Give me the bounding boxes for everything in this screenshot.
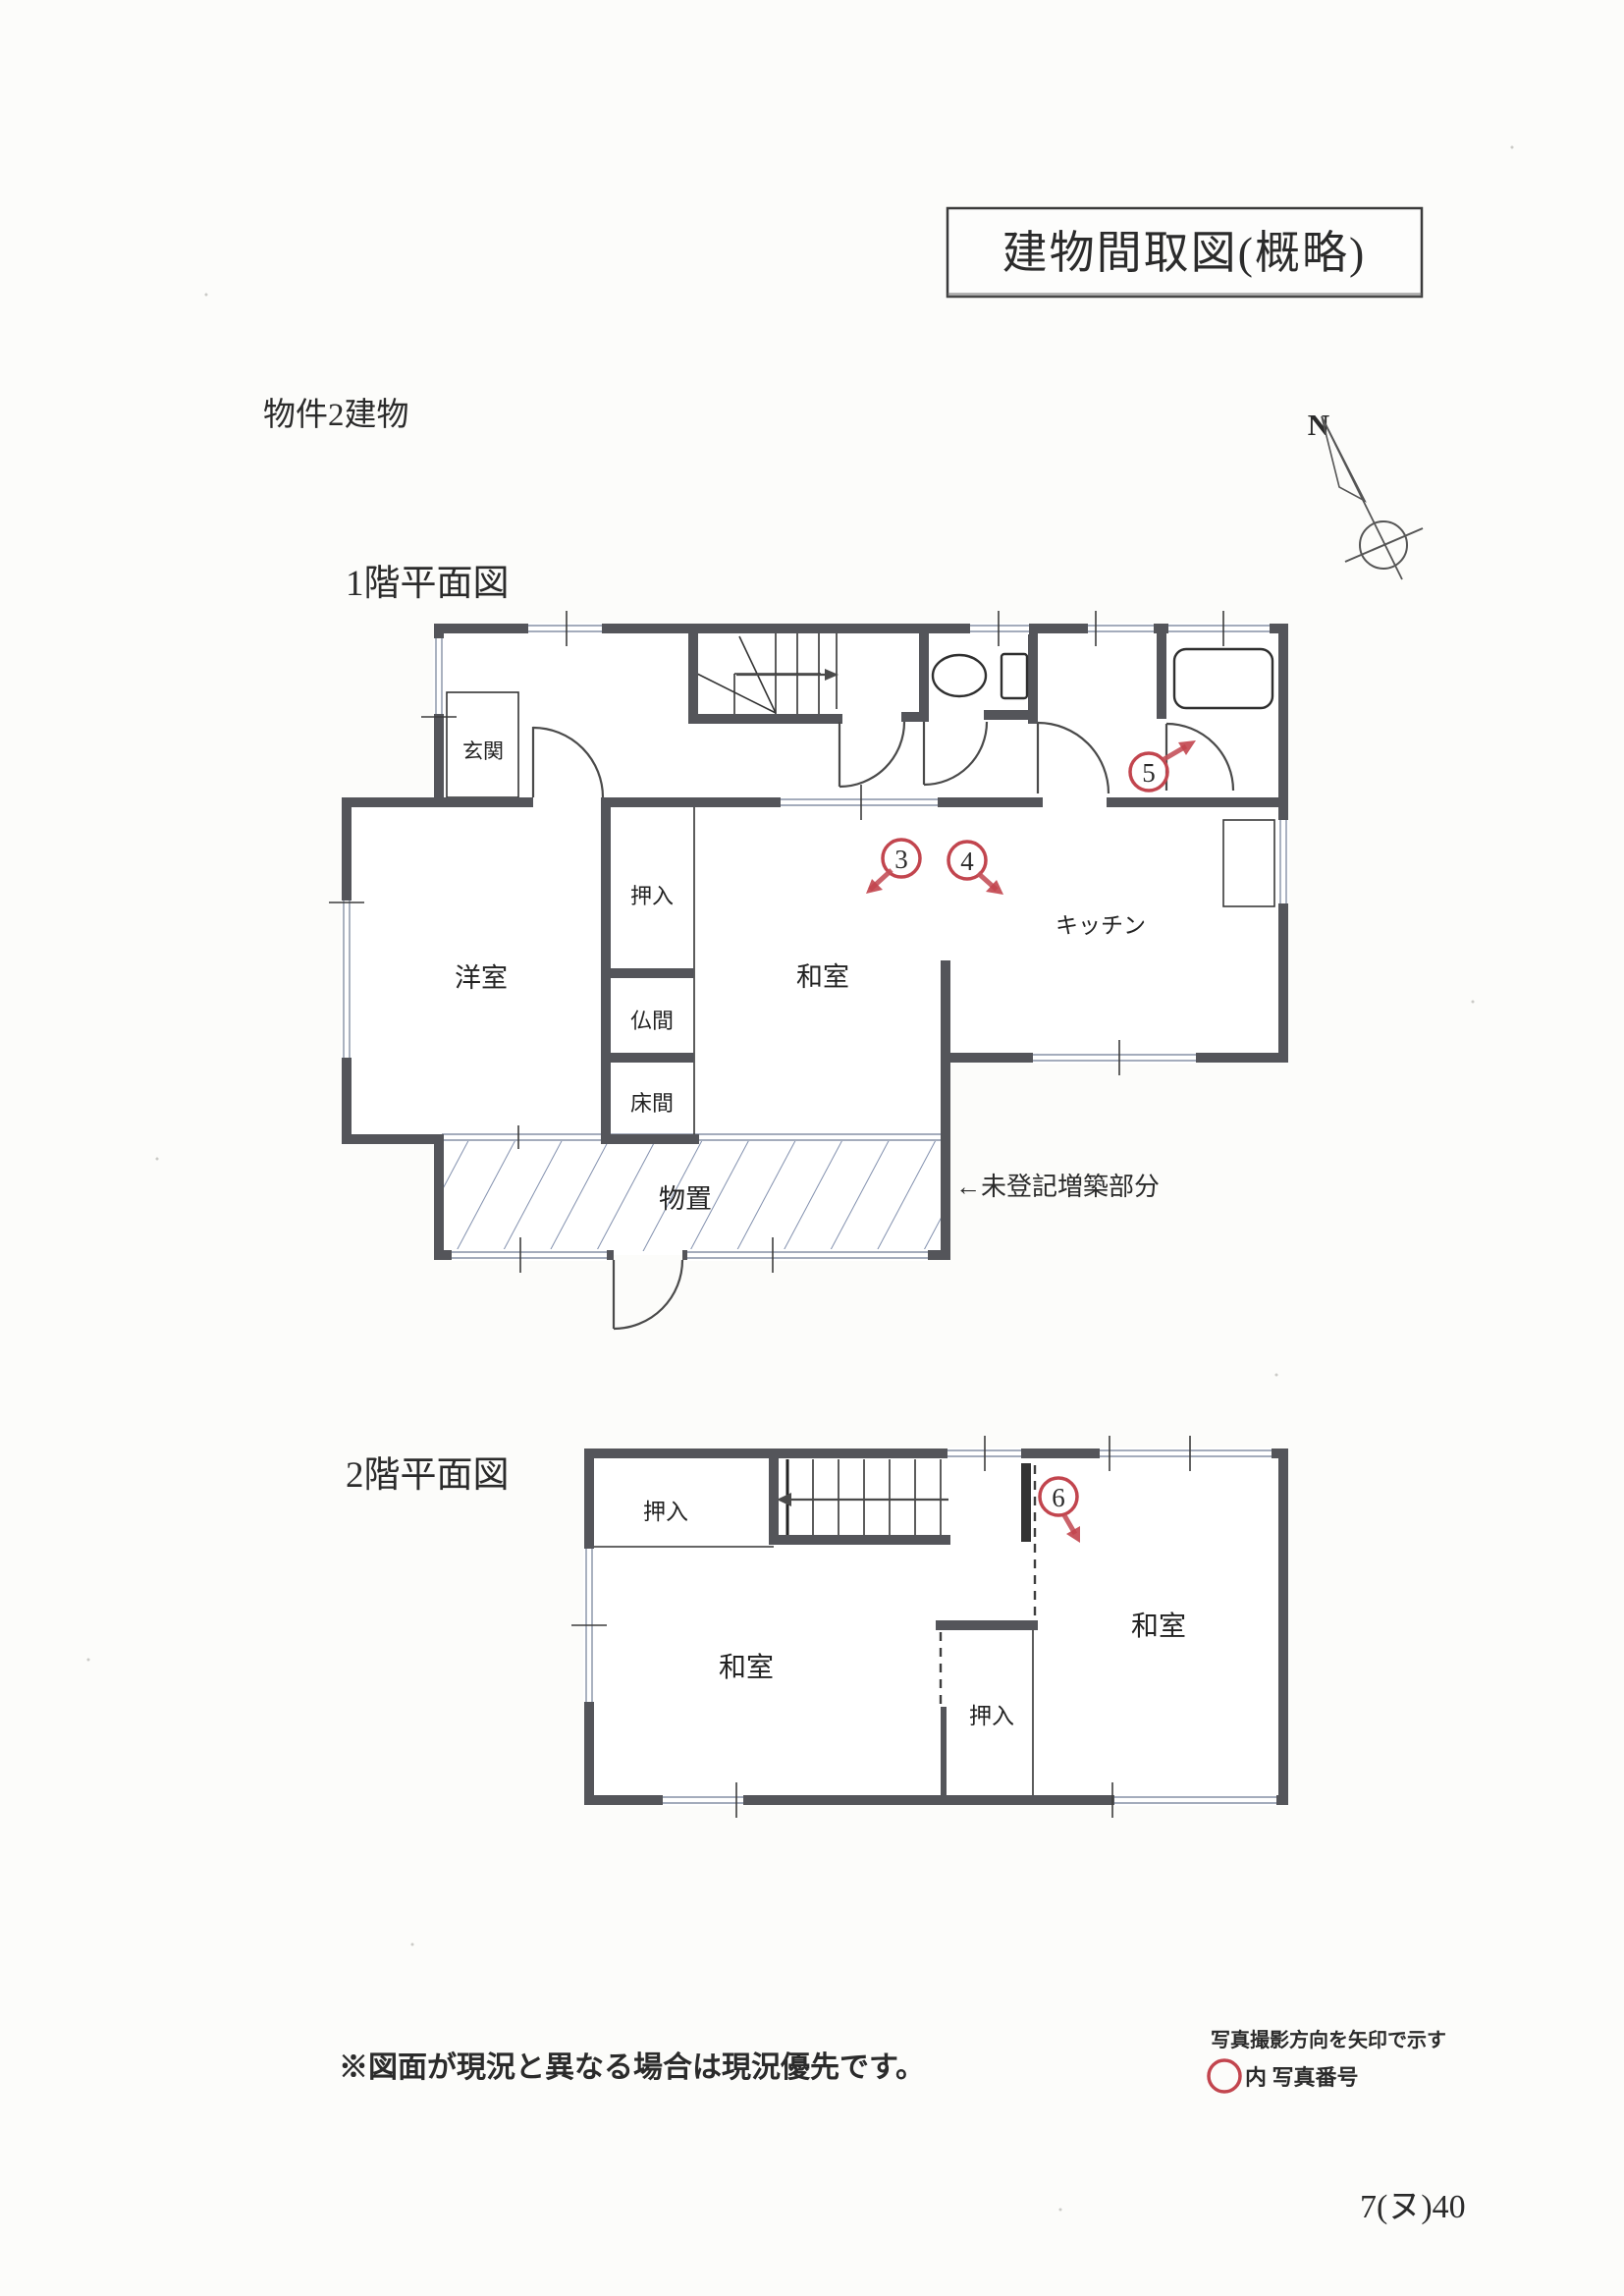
room-label-washitsu-2f-left: 和室 bbox=[719, 1652, 774, 1683]
room-label-butsuma: 仏間 bbox=[630, 1009, 674, 1033]
room-label-washitsu-1f: 和室 bbox=[796, 962, 849, 992]
sliding-door-panel bbox=[1021, 1463, 1031, 1542]
floor1-heading: 1階平面図 bbox=[346, 564, 510, 604]
floorplan-canvas: 建物間取図(概略) 物件2建物 N 1階平面図 bbox=[0, 0, 1624, 2296]
room-label-oshiire-2f-bottom: 押入 bbox=[969, 1704, 1014, 1728]
svg-text:5: 5 bbox=[1142, 758, 1156, 788]
svg-text:6: 6 bbox=[1052, 1483, 1065, 1512]
floor1-plan: 玄関 洋室 押入 仏間 床間 和室 キッチン 物置 ←未登記増築部分 bbox=[329, 611, 1289, 1329]
property-label: 物件2建物 bbox=[263, 397, 409, 433]
svg-text:3: 3 bbox=[894, 845, 908, 874]
svg-text:4: 4 bbox=[960, 847, 974, 876]
floor2-heading: 2階平面図 bbox=[346, 1455, 510, 1496]
room-label-washitsu-2f-right: 和室 bbox=[1131, 1611, 1186, 1642]
room-label-tokonoma: 床間 bbox=[630, 1091, 674, 1116]
north-compass-icon: N bbox=[1308, 408, 1423, 579]
room-label-genkan: 玄関 bbox=[462, 739, 504, 763]
photo-legend: 写真撮影方向を矢印で示す 内 写真番号 bbox=[1209, 2028, 1446, 2092]
room-label-oshiire-2f-top: 押入 bbox=[643, 1500, 688, 1524]
page-number: 7(ヌ)40 bbox=[1360, 2189, 1466, 2225]
room-label-kitchen: キッチン bbox=[1056, 913, 1146, 938]
page-title: 建物間取図(概略) bbox=[1002, 228, 1367, 278]
bathtub-icon bbox=[1174, 649, 1272, 708]
unregistered-extension-note: ←未登記増築部分 bbox=[955, 1173, 1160, 1201]
photo-number-circle-icon bbox=[1209, 2060, 1240, 2092]
scanned-floorplan-page: 建物間取図(概略) 物件2建物 N 1階平面図 bbox=[0, 0, 1624, 2296]
legend-number-note: 内 写真番号 bbox=[1245, 2065, 1359, 2090]
footer-disclaimer: ※図面が現況と異なる場合は現況優先です。 bbox=[339, 2050, 925, 2084]
storage-door-arc bbox=[614, 1260, 682, 1329]
room-label-youshitsu: 洋室 bbox=[455, 963, 508, 993]
room-label-monooki: 物置 bbox=[659, 1184, 712, 1214]
room-label-oshiire-1f: 押入 bbox=[630, 884, 674, 908]
title-box: 建物間取図(概略) bbox=[947, 208, 1422, 297]
legend-direction-note: 写真撮影方向を矢印で示す bbox=[1211, 2028, 1446, 2051]
floor2-plan: 押入 和室 和室 押入 bbox=[571, 1436, 1288, 1818]
